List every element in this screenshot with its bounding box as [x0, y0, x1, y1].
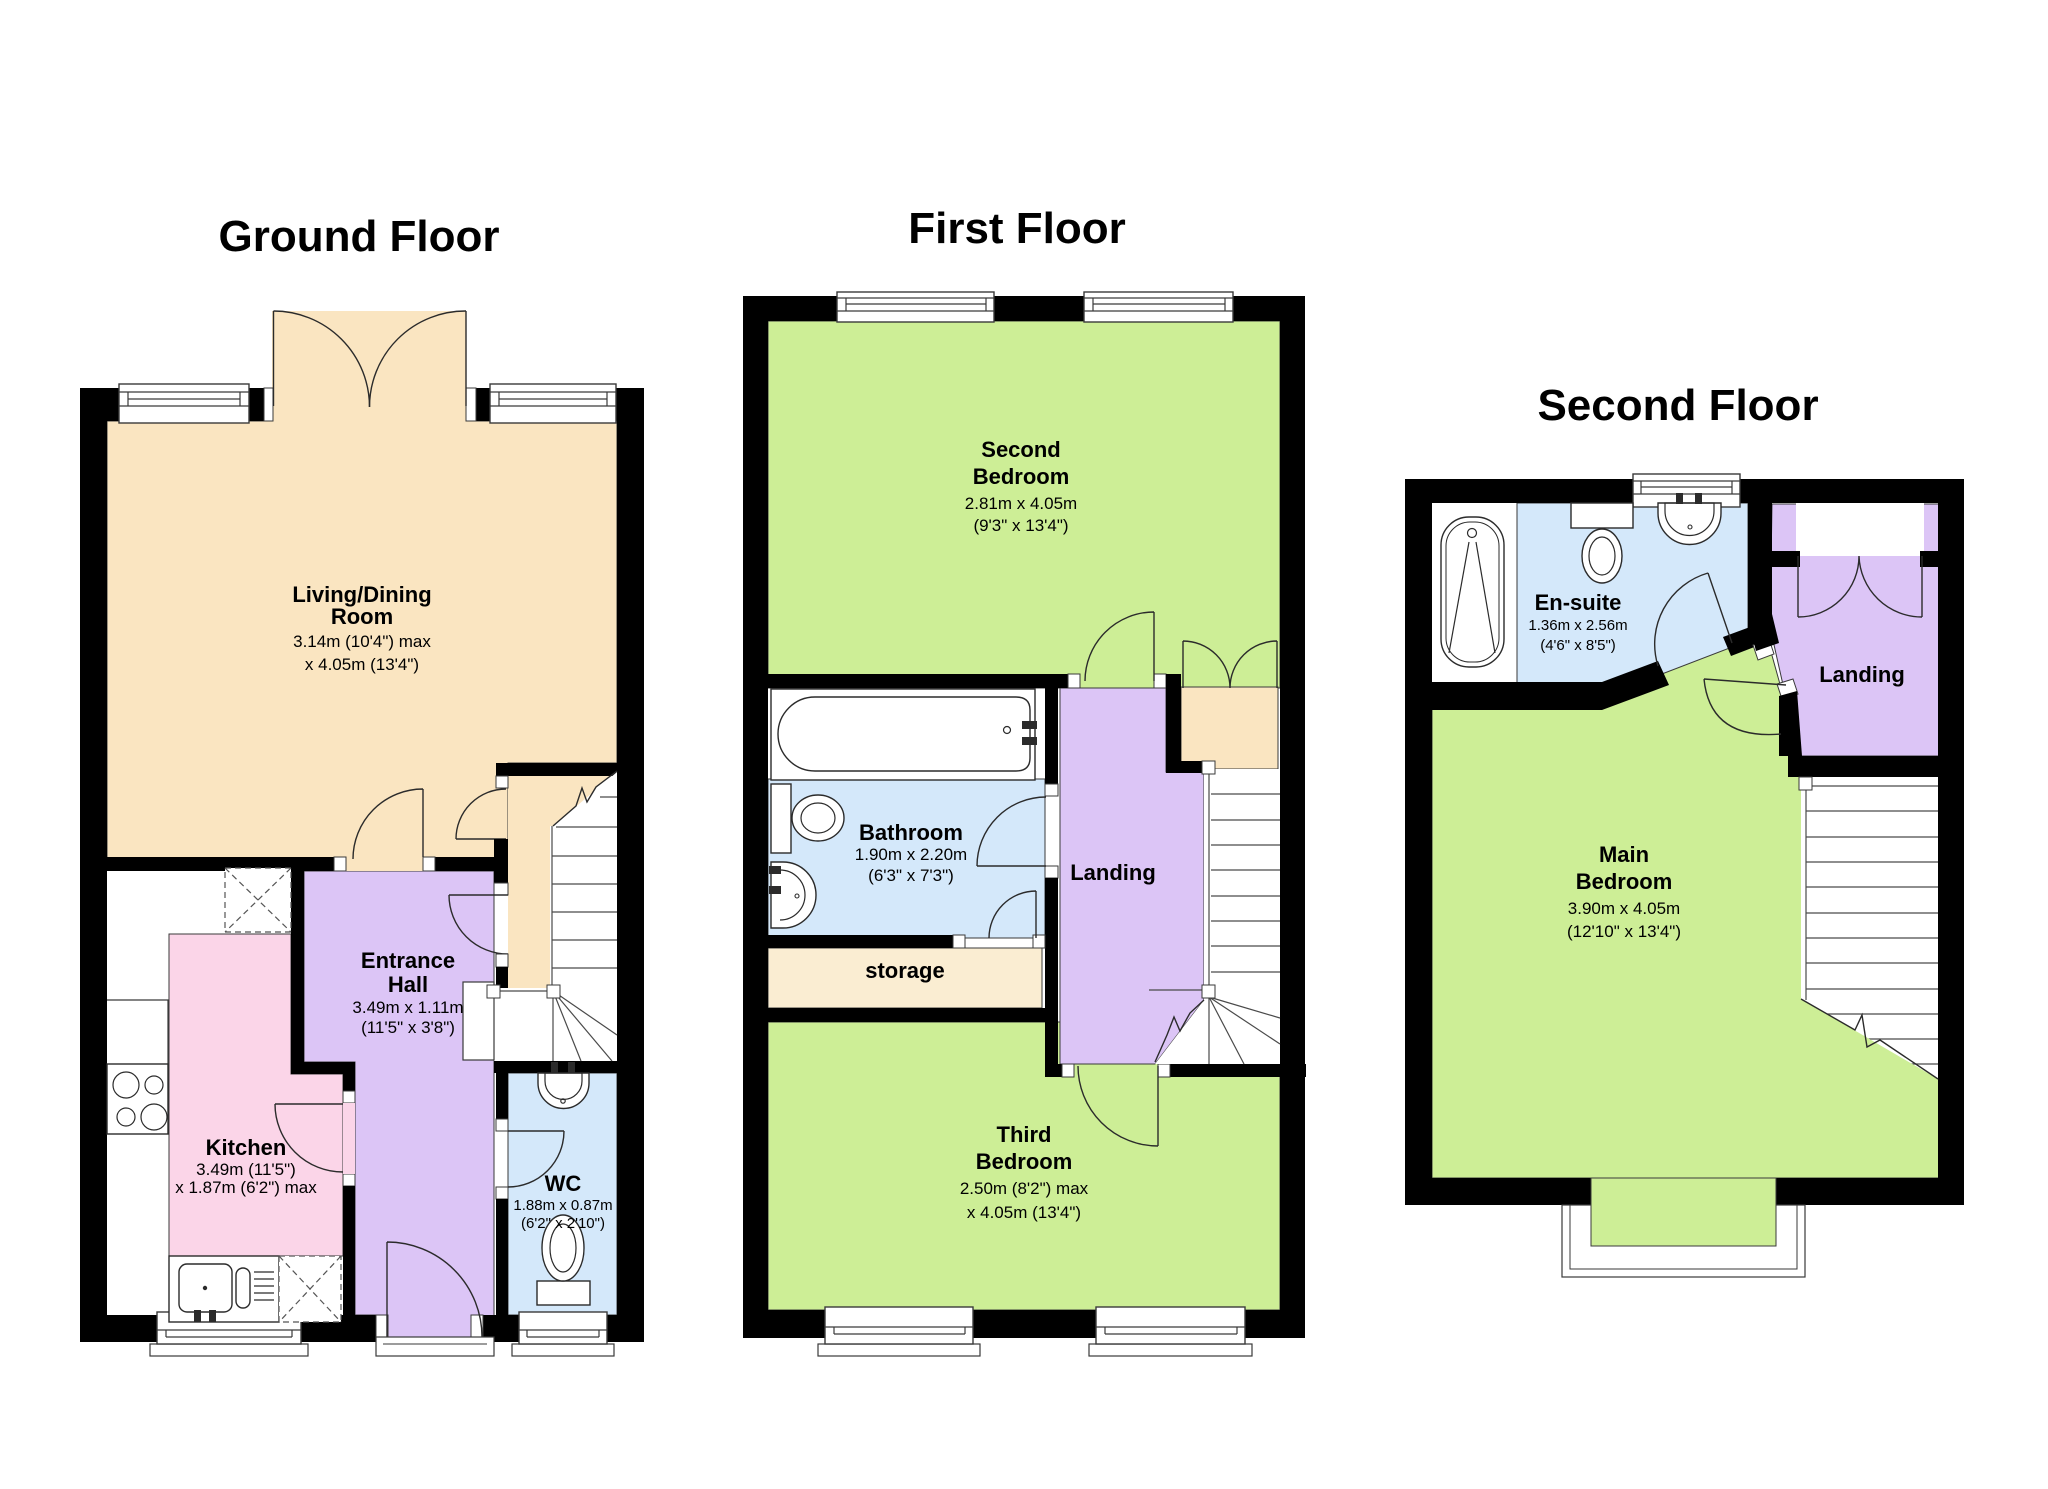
- svg-text:3.14m (10'4") max: 3.14m (10'4") max: [293, 632, 431, 651]
- svg-text:1.90m x 2.20m: 1.90m x 2.20m: [855, 845, 967, 864]
- svg-text:Ground Floor: Ground Floor: [218, 212, 499, 261]
- svg-text:(6'2" x 2'10"): (6'2" x 2'10"): [521, 1215, 605, 1232]
- svg-text:Bedroom: Bedroom: [976, 1149, 1073, 1174]
- svg-text:Second: Second: [981, 437, 1060, 462]
- svg-text:Entrance: Entrance: [361, 948, 455, 973]
- svg-text:x 4.05m (13'4"): x 4.05m (13'4"): [967, 1203, 1081, 1222]
- svg-text:En-suite: En-suite: [1535, 590, 1622, 615]
- svg-text:Landing: Landing: [1070, 860, 1156, 885]
- svg-text:WC: WC: [545, 1171, 582, 1196]
- svg-text:Bedroom: Bedroom: [973, 464, 1070, 489]
- svg-text:Bathroom: Bathroom: [859, 820, 963, 845]
- svg-text:x 4.05m (13'4"): x 4.05m (13'4"): [305, 655, 419, 674]
- svg-text:Kitchen: Kitchen: [206, 1135, 287, 1160]
- svg-text:Room: Room: [331, 604, 393, 629]
- svg-text:storage: storage: [865, 958, 944, 983]
- svg-text:2.50m (8'2") max: 2.50m (8'2") max: [960, 1179, 1089, 1198]
- svg-text:First Floor: First Floor: [908, 204, 1126, 253]
- svg-text:(4'6" x 8'5"): (4'6" x 8'5"): [1540, 637, 1616, 654]
- svg-text:(9'3" x 13'4"): (9'3" x 13'4"): [973, 516, 1068, 535]
- svg-text:Bedroom: Bedroom: [1576, 869, 1673, 894]
- svg-text:2.81m x 4.05m: 2.81m x 4.05m: [965, 494, 1077, 513]
- svg-text:Main: Main: [1599, 842, 1649, 867]
- svg-text:3.49m x 1.11m: 3.49m x 1.11m: [352, 998, 463, 1017]
- svg-text:Hall: Hall: [388, 972, 428, 997]
- svg-text:Third: Third: [997, 1122, 1052, 1147]
- svg-text:3.90m x 4.05m: 3.90m x 4.05m: [1568, 899, 1680, 918]
- svg-text:1.36m x 2.56m: 1.36m x 2.56m: [1528, 617, 1627, 634]
- svg-text:3.49m (11'5"): 3.49m (11'5"): [196, 1160, 296, 1179]
- svg-text:Landing: Landing: [1819, 662, 1905, 687]
- svg-text:1.88m x 0.87m: 1.88m x 0.87m: [513, 1197, 612, 1214]
- svg-text:(12'10" x 13'4"): (12'10" x 13'4"): [1567, 922, 1681, 941]
- svg-text:x 1.87m (6'2") max: x 1.87m (6'2") max: [175, 1178, 317, 1197]
- svg-text:(11'5" x 3'8"): (11'5" x 3'8"): [361, 1018, 455, 1037]
- svg-text:(6'3" x 7'3"): (6'3" x 7'3"): [868, 866, 954, 885]
- svg-text:Second Floor: Second Floor: [1537, 381, 1818, 430]
